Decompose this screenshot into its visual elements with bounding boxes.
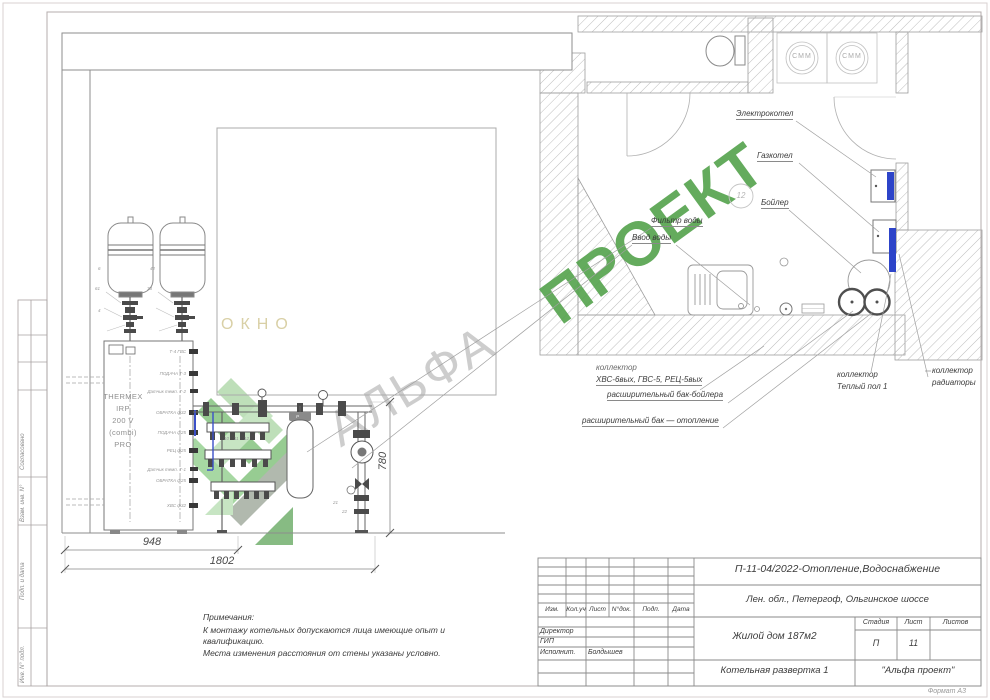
label-collector-floor-2: Теплый пол 1 xyxy=(837,382,887,391)
format-note: Формат А3 xyxy=(906,688,966,695)
callout-number: 12 xyxy=(244,436,249,441)
label-collector-hvs-2: ХВС-6вых, ГВС-5, РЕЦ-5вых xyxy=(596,375,702,386)
expansion-tanks-plan xyxy=(839,260,890,315)
port-label: ХВС ф32 xyxy=(130,503,186,508)
callout-number: 21 xyxy=(333,500,338,505)
col-data: Дата xyxy=(668,606,694,613)
label-water-inlet: Ввод воды xyxy=(632,233,671,244)
port-label: ПОДАЧА ф25 xyxy=(130,430,186,435)
sheet-title: Котельная развертка 1 xyxy=(694,665,855,676)
port-label: РЕЦ ф25 xyxy=(130,448,186,453)
col-list: Лист xyxy=(586,606,609,613)
tank-piping xyxy=(104,292,195,341)
col-izm: Изм. xyxy=(538,606,566,613)
sheet-label: Лист xyxy=(897,619,930,626)
port-label: Датчик темп. Т-2 xyxy=(130,389,186,394)
stage-value: П xyxy=(855,638,897,648)
wall-boilers xyxy=(871,170,896,272)
callout-number: 22 xyxy=(342,509,347,514)
port-label: ОБРАТКА ф32 xyxy=(130,410,186,415)
notes-line2: квалификацию. xyxy=(203,637,264,647)
label-collector-rad-2: радиаторы xyxy=(932,378,976,387)
col-podp: Подп. xyxy=(634,606,668,613)
port-label: ОБРАТКА ф25 xyxy=(130,478,186,483)
notes-line1: К монтажу котельных допускаются лица име… xyxy=(203,626,445,636)
label-collector-hvs-1: коллектор xyxy=(596,363,637,372)
notes-line3: Места изменения расстояния от стены указ… xyxy=(203,649,441,659)
door-arc-entry xyxy=(834,97,896,159)
strip-podp: Подп. и дата xyxy=(20,562,26,600)
water-heater-label: THERMEX IRP 200 V (combi) PRO xyxy=(99,391,147,451)
label-boiler: Бойлер xyxy=(761,198,789,209)
project-address: Лен. обл., Петергоф, Ольгинское шоссе xyxy=(694,594,981,605)
label-water-filter: Фильтр воды xyxy=(651,216,703,227)
filter-gauge-label: Р xyxy=(296,414,299,419)
port-label: Датчик темп. Т-1 xyxy=(130,467,186,472)
dimension-1802: 1802 xyxy=(198,555,246,567)
manifolds xyxy=(205,412,275,533)
washing-machine-label: СММ xyxy=(784,53,820,60)
strip-soglasovano: Согласовано xyxy=(20,433,26,470)
drawing-sheet: АЛЬФА ПРОЕКТ xyxy=(0,0,990,700)
label-collector-rad-1: коллектор xyxy=(932,366,973,375)
pump-assembly xyxy=(347,412,373,533)
row-gip: ГИП xyxy=(540,638,554,645)
dimension-948: 948 xyxy=(130,536,174,548)
label-exp-tank-boiler: расширительный бак-бойлера xyxy=(607,390,723,401)
callout-number: 4 xyxy=(98,308,101,313)
col-ndok: N°док. xyxy=(609,606,634,613)
row-ispolnit: Исполнит. xyxy=(540,649,576,656)
col-koluch: Кол.уч xyxy=(566,606,586,613)
company-name: "Альфа проект" xyxy=(855,665,981,676)
label-gas-boiler: Газкотел xyxy=(757,151,793,162)
water-filter-elevation xyxy=(287,406,313,498)
callout-number: 73 xyxy=(147,286,152,291)
sheets-label: Листов xyxy=(930,619,981,626)
window-outline xyxy=(217,128,496,395)
callout-number: 61 xyxy=(95,286,100,291)
row-director: Директор xyxy=(540,628,574,635)
stage-label: Стадия xyxy=(855,619,897,626)
port-label: ПОДАЧА Т-3 xyxy=(130,371,186,376)
expansion-tanks-elevation xyxy=(108,217,205,297)
dimension-780: 780 xyxy=(377,444,389,478)
port-label: Т-4 ГВС xyxy=(130,349,186,354)
label-electric-boiler: Электрокотел xyxy=(736,109,793,120)
notes-title: Примечания: xyxy=(203,613,254,623)
door-arc-wc xyxy=(627,93,690,156)
heater-volume: 200 V xyxy=(99,415,147,427)
toilet xyxy=(706,36,745,66)
callout-number: 10 xyxy=(224,436,229,441)
callout-number: 6 xyxy=(98,266,101,271)
sheet-value: 11 xyxy=(897,638,930,648)
sink xyxy=(688,265,753,315)
project-object: Жилой дом 187м2 xyxy=(694,631,855,642)
washing-machine-label: СММ xyxy=(834,53,870,60)
window-label: ОКНО xyxy=(221,316,295,334)
executor-name: Болдышев xyxy=(588,649,623,656)
doc-code: П-11-04/2022-Отопление,Водоснабжение xyxy=(694,563,981,575)
callout-number: 42 xyxy=(150,266,155,271)
strip-vzam: Взам. инв. N° xyxy=(20,485,26,522)
label-collector-floor-1: коллектор xyxy=(837,370,878,379)
callout-12-label: 12 xyxy=(730,191,752,200)
label-exp-tank-heating: расширительный бак — отопление xyxy=(582,416,719,427)
strip-inv: Инв. N° подл. xyxy=(20,646,26,683)
callout-number: 11 xyxy=(234,436,239,441)
